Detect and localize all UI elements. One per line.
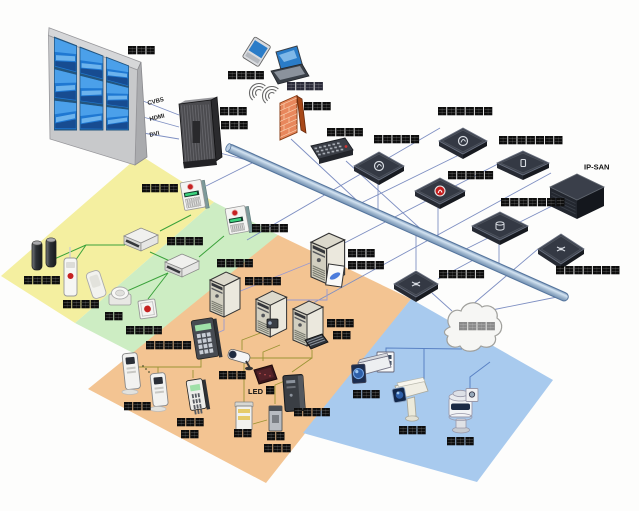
svg-text:IP-SAN: IP-SAN: [584, 163, 609, 172]
svg-text:LED: LED: [248, 387, 264, 396]
